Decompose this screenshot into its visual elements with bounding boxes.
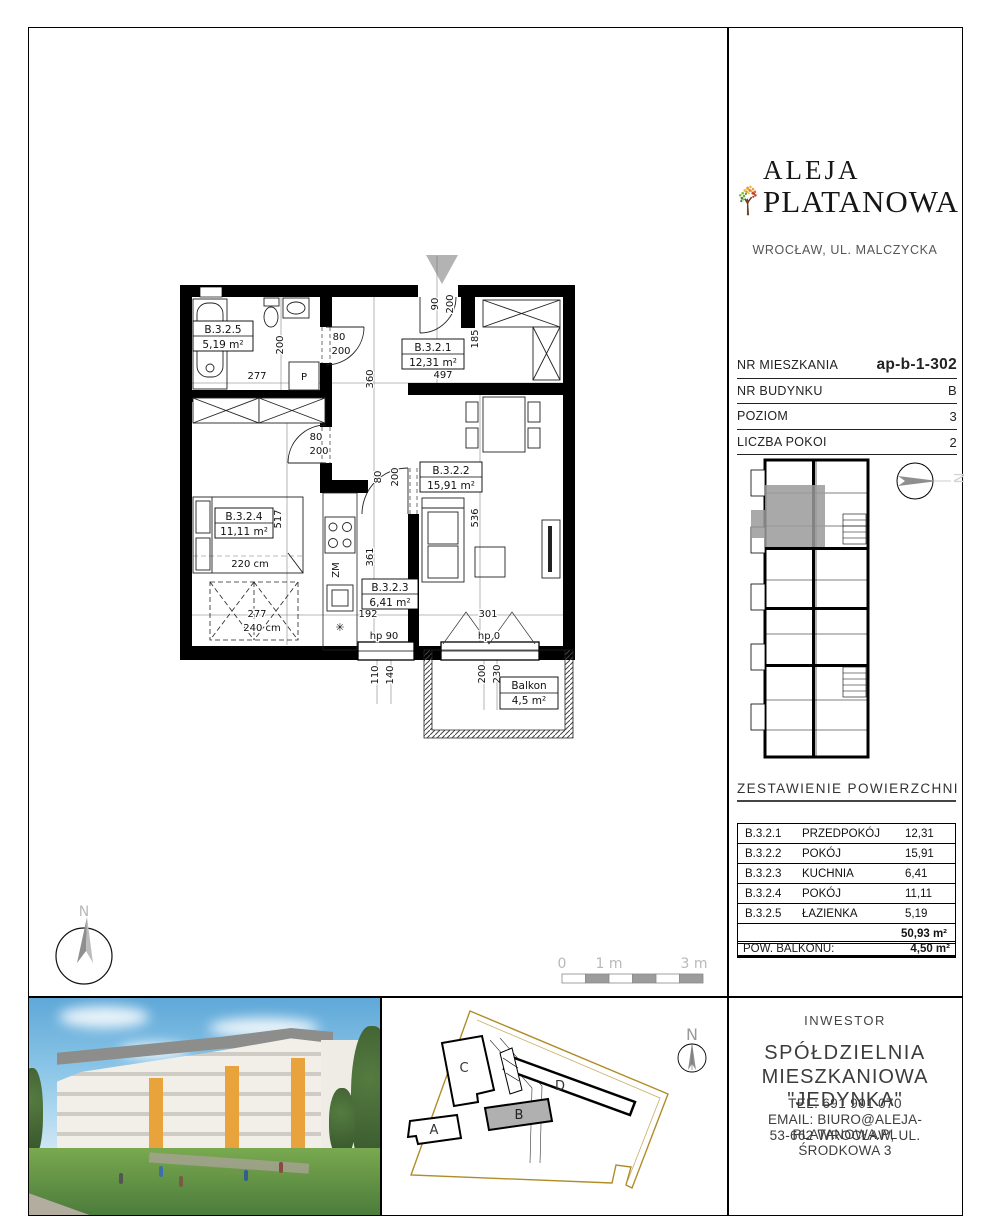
area-row: B.3.2.4 POKÓJ 11,11 bbox=[738, 884, 955, 904]
svg-text:6,41 m²: 6,41 m² bbox=[369, 597, 410, 609]
svg-text:B: B bbox=[515, 1108, 524, 1123]
areas-table: B.3.2.1 PRZEDPOKÓJ 12,31 B.3.2.2 POKÓJ 1… bbox=[737, 823, 956, 944]
areas-title-rule bbox=[737, 800, 956, 802]
toilet-icon bbox=[264, 298, 279, 327]
dining-table-icon bbox=[466, 397, 540, 452]
svg-text:80: 80 bbox=[333, 332, 346, 343]
area-row: B.3.2.5 ŁAZIENKA 5,19 bbox=[738, 904, 955, 924]
area-row: B.3.2.1 PRZEDPOKÓJ 12,31 bbox=[738, 824, 955, 844]
north-compass: N bbox=[56, 904, 112, 984]
svg-text:hp 90: hp 90 bbox=[370, 631, 399, 642]
room-label-b325: B.3.2.5 5,19 m² bbox=[193, 321, 253, 351]
svg-text:200: 200 bbox=[445, 294, 456, 313]
site-compass: N bbox=[678, 1025, 706, 1072]
area-name: POKÓJ bbox=[802, 848, 905, 860]
svg-text:B.3.2.1: B.3.2.1 bbox=[414, 342, 451, 354]
areas-table-title: ZESTAWIENIE POWIERZCHNI bbox=[737, 781, 959, 796]
svg-text:B.3.2.4: B.3.2.4 bbox=[225, 511, 263, 523]
brand-name-line1: ALEJA bbox=[763, 155, 959, 185]
area-value: 11,11 bbox=[905, 888, 955, 900]
area-name: PRZEDPOKÓJ bbox=[802, 828, 905, 840]
investor-address: 53-662 WROCŁAW, UL. ŚRODKOWA 3 bbox=[727, 1128, 963, 1158]
svg-text:192: 192 bbox=[358, 609, 377, 620]
svg-text:80: 80 bbox=[373, 471, 384, 484]
area-code: B.3.2.4 bbox=[738, 888, 802, 900]
pouf-icon bbox=[475, 547, 505, 577]
svg-text:497: 497 bbox=[433, 370, 452, 381]
area-code: B.3.2.5 bbox=[738, 908, 802, 920]
svg-text:3 m: 3 m bbox=[681, 956, 708, 972]
svg-text:0: 0 bbox=[558, 956, 567, 972]
svg-text:P: P bbox=[301, 372, 307, 383]
svg-text:D: D bbox=[555, 1079, 565, 1094]
area-name: POKÓJ bbox=[802, 888, 905, 900]
svg-text:A: A bbox=[430, 1123, 439, 1138]
info-value: B bbox=[948, 383, 957, 398]
stove-icon bbox=[325, 517, 355, 553]
svg-text:200: 200 bbox=[309, 446, 328, 457]
svg-text:C: C bbox=[459, 1061, 468, 1076]
brand-location: WROCŁAW, UL. MALCZYCKA bbox=[727, 243, 963, 257]
highlighted-apartment bbox=[765, 485, 825, 547]
svg-text:200: 200 bbox=[275, 335, 286, 354]
shaft bbox=[200, 287, 222, 297]
site-building-c: C bbox=[442, 1036, 494, 1106]
room-label-balcony: Balkon 4,5 m² bbox=[500, 677, 558, 709]
svg-text:277: 277 bbox=[247, 371, 266, 382]
svg-text:80: 80 bbox=[310, 432, 323, 443]
svg-text:185: 185 bbox=[470, 329, 481, 348]
balcony-area-box: POW. BALKONU: 4,50 m² bbox=[737, 941, 956, 958]
area-value: 6,41 bbox=[905, 868, 955, 880]
svg-text:301: 301 bbox=[478, 609, 497, 620]
svg-text:220 cm: 220 cm bbox=[231, 559, 269, 570]
svg-text:361: 361 bbox=[365, 547, 376, 566]
svg-text:11,11 m²: 11,11 m² bbox=[220, 526, 268, 538]
svg-text:Balkon: Balkon bbox=[511, 680, 546, 692]
svg-text:4,5 m²: 4,5 m² bbox=[512, 695, 546, 707]
investor-name-line1: SPÓŁDZIELNIA bbox=[727, 1042, 963, 1065]
wardrobes bbox=[193, 300, 560, 423]
svg-text:15,91 m²: 15,91 m² bbox=[427, 480, 475, 492]
brand-name-line2: PLATANOWA bbox=[763, 185, 959, 218]
svg-text:hp 0: hp 0 bbox=[478, 631, 500, 642]
fridge-symbol-icon: ✳ bbox=[335, 621, 344, 634]
area-value: 12,31 bbox=[905, 828, 955, 840]
svg-text:B.3.2.5: B.3.2.5 bbox=[204, 324, 241, 336]
washing-machine-icon: P bbox=[289, 362, 319, 390]
scale-bar: 0 1 m 3 m bbox=[558, 956, 708, 983]
site-building-a: A bbox=[408, 1115, 461, 1144]
info-row-level: POZIOM 3 bbox=[737, 404, 957, 430]
room-label-b323: B.3.2.3 6,41 m² bbox=[362, 579, 418, 609]
svg-text:5,19 m²: 5,19 m² bbox=[202, 339, 243, 351]
svg-text:536: 536 bbox=[470, 508, 481, 527]
building-floor-overview: N bbox=[748, 452, 964, 764]
sink-label: ZM bbox=[331, 562, 342, 577]
info-row-apartment-number: NR MIESZKANIA ap-b-1-302 bbox=[737, 353, 957, 379]
site-plan: C A D B N bbox=[382, 998, 722, 1215]
area-row: B.3.2.2 POKÓJ 15,91 bbox=[738, 844, 955, 864]
info-value: ap-b-1-302 bbox=[876, 356, 957, 374]
mini-compass: N bbox=[897, 463, 964, 499]
info-value: 2 bbox=[949, 435, 957, 450]
building-photo bbox=[29, 998, 380, 1215]
svg-text:200: 200 bbox=[390, 467, 401, 486]
unit-info-table: NR MIESZKANIA ap-b-1-302 NR BUDYNKU B PO… bbox=[737, 353, 957, 455]
oven-icon bbox=[327, 585, 353, 611]
info-label: NR MIESZKANIA bbox=[737, 358, 838, 372]
compass-n-label: N bbox=[79, 904, 89, 920]
info-label: POZIOM bbox=[737, 409, 788, 423]
svg-text:110: 110 bbox=[370, 665, 381, 684]
divider-vertical-main bbox=[727, 27, 729, 1216]
balcony-area-label: POW. BALKONU: bbox=[743, 943, 834, 955]
balcony-area-value: 4,50 m² bbox=[910, 943, 950, 955]
investor-phone: TEL: 691 901 070 bbox=[727, 1096, 963, 1111]
svg-text:200: 200 bbox=[331, 346, 350, 357]
area-code: B.3.2.3 bbox=[738, 868, 802, 880]
area-value: 15,91 bbox=[905, 848, 955, 860]
room-label-b324: B.3.2.4 11,11 m² bbox=[215, 508, 273, 538]
area-code: B.3.2.2 bbox=[738, 848, 802, 860]
site-building-b: B bbox=[485, 1099, 552, 1130]
svg-text:140: 140 bbox=[385, 665, 396, 684]
info-label: LICZBA POKOI bbox=[737, 435, 827, 449]
svg-text:B.3.2.3: B.3.2.3 bbox=[371, 582, 408, 594]
mini-compass-n-label: N bbox=[950, 472, 964, 483]
investor-heading: INWESTOR bbox=[727, 1013, 963, 1028]
brand-logo: ALEJA PLATANOWA bbox=[737, 155, 959, 245]
svg-text:B.3.2.2: B.3.2.2 bbox=[432, 465, 469, 477]
area-row: B.3.2.3 KUCHNIA 6,41 bbox=[738, 864, 955, 884]
info-label: NR BUDYNKU bbox=[737, 384, 823, 398]
washbasin-icon bbox=[283, 298, 309, 318]
area-total-value: 50,93 m² bbox=[901, 928, 947, 940]
svg-text:277: 277 bbox=[247, 609, 266, 620]
entrance-arrow-icon bbox=[426, 255, 458, 284]
tv-unit-icon bbox=[542, 520, 560, 578]
area-value: 5,19 bbox=[905, 908, 955, 920]
svg-text:N: N bbox=[686, 1025, 698, 1044]
svg-text:200: 200 bbox=[477, 664, 488, 683]
info-row-building-number: NR BUDYNKU B bbox=[737, 379, 957, 405]
info-value: 3 bbox=[949, 409, 957, 424]
svg-text:240 cm: 240 cm bbox=[243, 623, 281, 634]
svg-text:360: 360 bbox=[365, 369, 376, 388]
svg-text:12,31 m²: 12,31 m² bbox=[409, 357, 457, 369]
tree-logo-icon bbox=[737, 155, 759, 245]
sofa-icon bbox=[422, 498, 464, 582]
area-name: ŁAZIENKA bbox=[802, 908, 905, 920]
svg-text:90: 90 bbox=[430, 298, 441, 311]
room-label-b321: B.3.2.1 12,31 m² bbox=[402, 339, 464, 369]
svg-text:1 m: 1 m bbox=[596, 956, 623, 972]
svg-text:517: 517 bbox=[273, 509, 284, 528]
apartment-floorplan: P ZM bbox=[28, 27, 727, 996]
room-label-b322: B.3.2.2 15,91 m² bbox=[420, 462, 482, 492]
area-name: KUCHNIA bbox=[802, 868, 905, 880]
floorplan-sheet: P ZM bbox=[0, 0, 992, 1222]
area-code: B.3.2.1 bbox=[738, 828, 802, 840]
